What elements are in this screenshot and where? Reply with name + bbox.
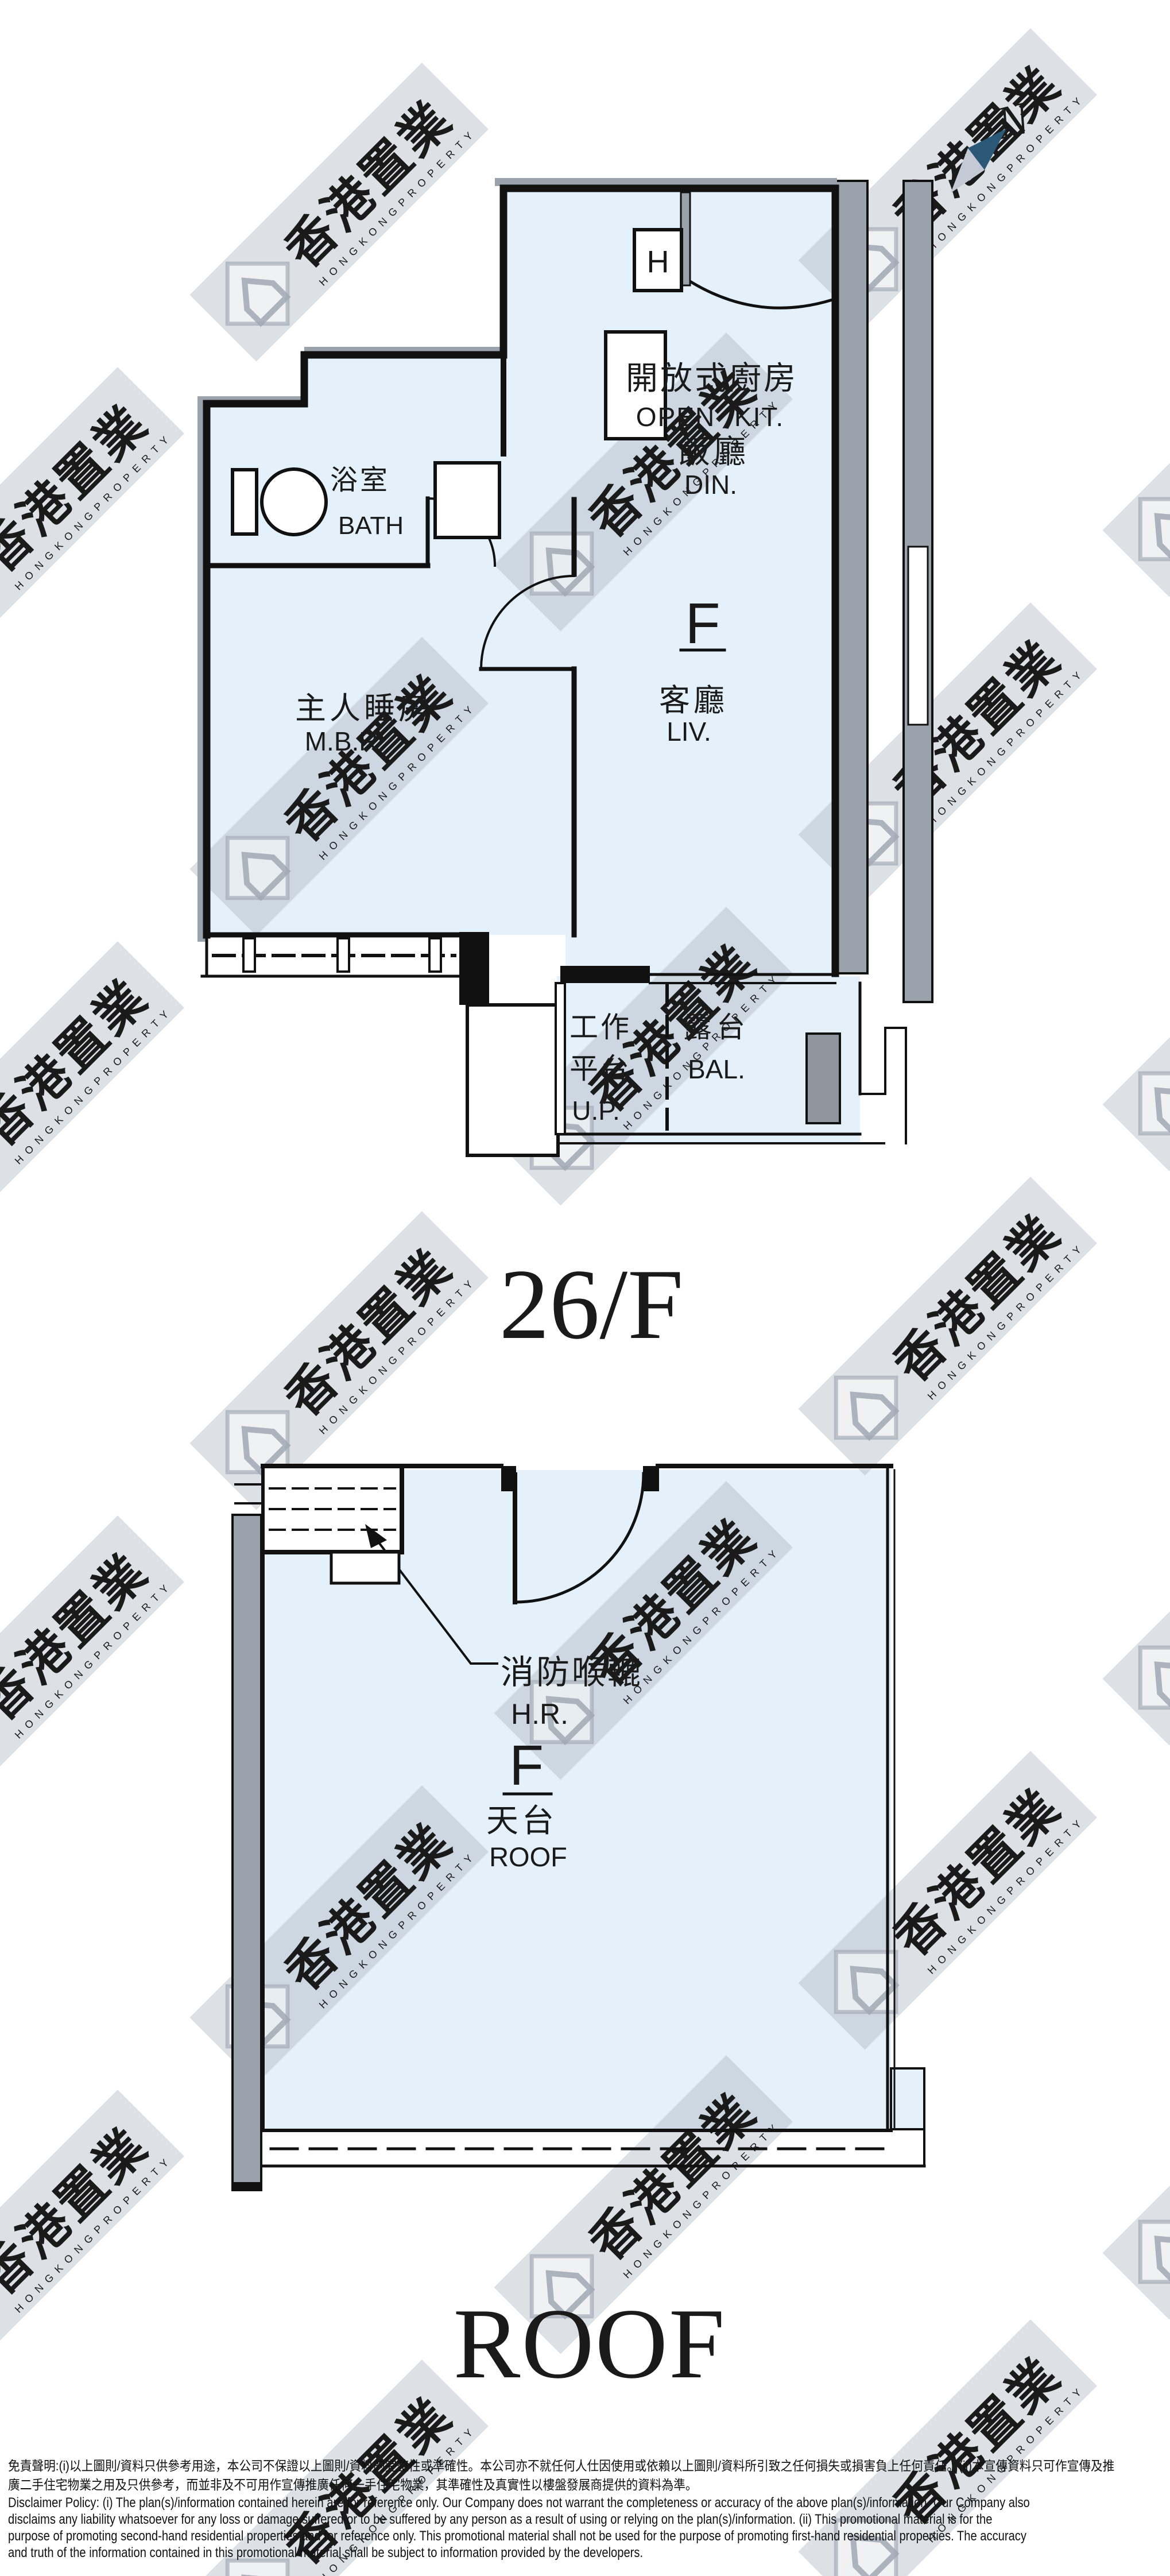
roof-fixture bbox=[331, 1552, 399, 1583]
living-label-cjk: 客廳 bbox=[659, 683, 728, 718]
window-mullion bbox=[429, 938, 441, 972]
unit-label-roof: F bbox=[509, 1734, 544, 1797]
disclaimer-line: 免責聲明:(i)以上圖則/資料只供參考用途，本公司不保證以上圖則/資料的完整性或… bbox=[8, 2457, 1052, 2476]
living-label-en: LIV. bbox=[667, 717, 711, 747]
wall-column bbox=[459, 932, 489, 1005]
up-label-en: U.P. bbox=[572, 1096, 620, 1125]
disclaimer-line: Disclaimer Policy: (i) The plan(s)/infor… bbox=[8, 2494, 982, 2511]
roof-label-en: ROOF bbox=[489, 1842, 567, 1872]
door-jamb bbox=[643, 1466, 659, 1491]
external-platform bbox=[467, 1005, 558, 1155]
disclaimer-line: purpose of promoting second-hand residen… bbox=[8, 2528, 982, 2544]
hose-reel-label-en: H.R. bbox=[511, 1698, 568, 1730]
mbr-label-en: M.B.R. bbox=[305, 726, 386, 756]
floor-plan-drawing: 香港置業 H O N G K O N G P R O P E R T Y bbox=[0, 0, 1170, 2576]
bath-label-cjk: 浴室 bbox=[330, 465, 390, 496]
kitchen-label-cjk: 開放式廚房 bbox=[626, 360, 798, 396]
dining-label-cjk: 飯廳 bbox=[678, 434, 749, 470]
door-jamb bbox=[501, 1466, 516, 1491]
bath-sink bbox=[435, 463, 499, 537]
disclaimer-line: and truth of the information contained i… bbox=[8, 2544, 982, 2561]
window-mullion bbox=[338, 938, 349, 972]
toilet-tank bbox=[233, 470, 257, 534]
disclaimer-line: disclaims any liability whatsoever for a… bbox=[8, 2511, 982, 2528]
disclaimer-line: 廣二手住宅物業之用及只供參考，而並非及不可用作宣傳推廣任何一手住宅物業，其準確性… bbox=[8, 2476, 1052, 2494]
floor-title-roof: ROOF bbox=[454, 2288, 726, 2399]
mbr-label-cjk: 主人睡房 bbox=[295, 691, 433, 726]
up-label-cjk2: 平台 bbox=[569, 1053, 632, 1085]
kitchen-label-en: OPEN KIT. bbox=[636, 402, 784, 432]
window-mullion bbox=[243, 938, 255, 972]
balcony-fixture bbox=[807, 1034, 840, 1123]
bath-label-en: BATH bbox=[338, 512, 404, 540]
toilet-bowl bbox=[262, 469, 326, 535]
floor-title-26f: 26/F bbox=[499, 1248, 684, 1360]
up-label-cjk1: 工作 bbox=[569, 1011, 632, 1043]
floor-plan-page: 香港置業 H O N G K O N G P R O P E R T Y bbox=[0, 0, 1170, 2576]
unit-label-26f: F bbox=[685, 591, 720, 656]
balcony-label-cjk: 露台 bbox=[683, 1011, 750, 1043]
disclaimer: 免責聲明:(i)以上圖則/資料只供參考用途，本公司不保證以上圖則/資料的完整性或… bbox=[8, 2457, 1168, 2561]
heater-label: H bbox=[647, 245, 669, 279]
balcony-label-en: BAL. bbox=[688, 1054, 745, 1084]
dining-label-en: DIN. bbox=[684, 470, 737, 500]
hose-reel-label-cjk: 消防喉轆 bbox=[501, 1654, 643, 1691]
roof-label-cjk: 天台 bbox=[486, 1803, 557, 1839]
